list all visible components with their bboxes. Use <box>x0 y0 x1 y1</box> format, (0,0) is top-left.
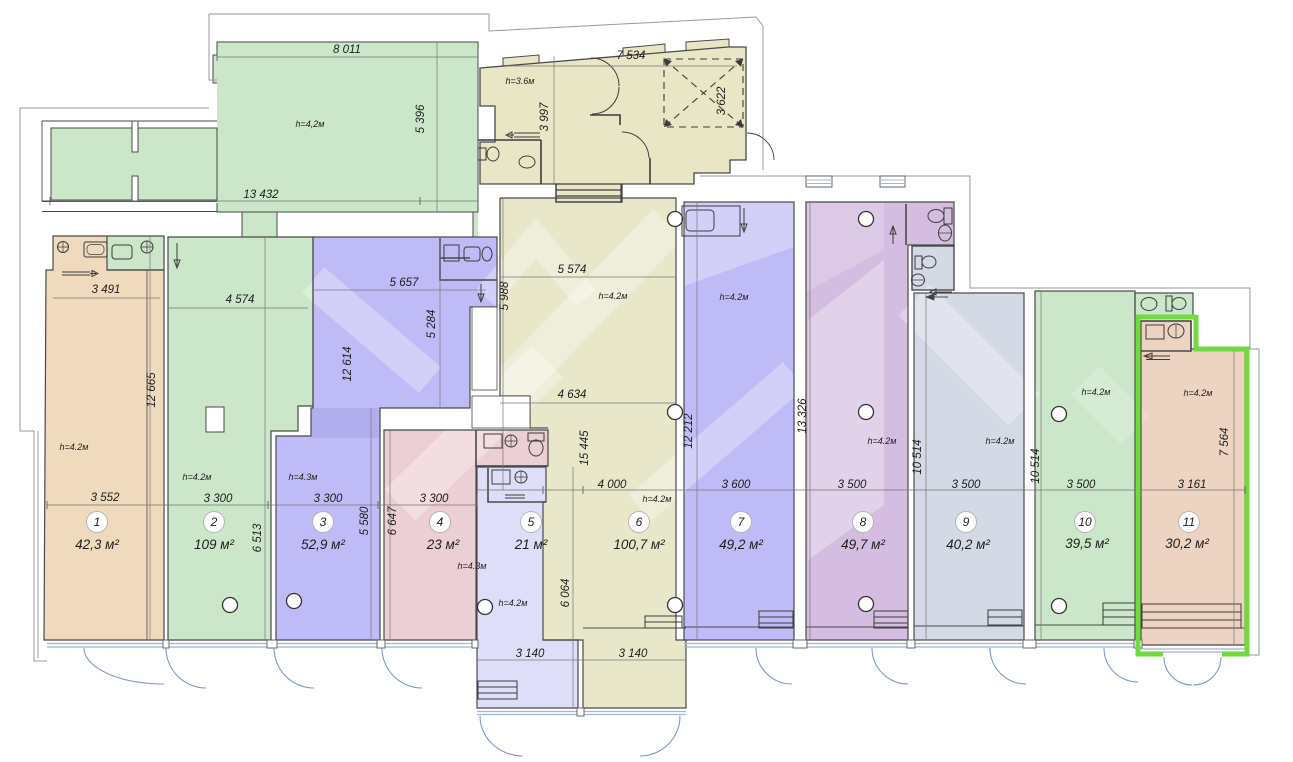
svg-text:13 432: 13 432 <box>243 189 279 201</box>
svg-text:23 м²: 23 м² <box>426 537 460 552</box>
svg-text:52,9 м²: 52,9 м² <box>301 537 345 552</box>
svg-text:3 500: 3 500 <box>838 479 867 491</box>
svg-text:h=4.3м: h=4.3м <box>289 472 318 482</box>
svg-text:3 140: 3 140 <box>619 648 648 660</box>
svg-text:40,2 м²: 40,2 м² <box>946 537 990 552</box>
svg-text:5 396: 5 396 <box>415 104 427 133</box>
svg-text:1: 1 <box>94 515 101 529</box>
svg-text:4 000: 4 000 <box>598 479 627 491</box>
svg-text:100,7 м²: 100,7 м² <box>613 537 665 552</box>
svg-text:h=4.2м: h=4.2м <box>643 494 672 504</box>
svg-text:5 657: 5 657 <box>390 277 419 289</box>
svg-text:5 574: 5 574 <box>558 264 587 276</box>
svg-text:5 988: 5 988 <box>499 281 511 310</box>
svg-text:h=4.2м: h=4.2м <box>720 292 749 302</box>
svg-text:3 491: 3 491 <box>92 284 121 296</box>
svg-text:10 514: 10 514 <box>912 439 924 474</box>
svg-text:15 445: 15 445 <box>579 430 591 466</box>
svg-text:3 300: 3 300 <box>204 493 233 505</box>
svg-text:12 665: 12 665 <box>146 372 158 408</box>
svg-text:109 м²: 109 м² <box>194 537 235 552</box>
svg-text:12 614: 12 614 <box>342 346 354 381</box>
svg-text:49,2 м²: 49,2 м² <box>719 537 763 552</box>
svg-text:3: 3 <box>320 515 327 529</box>
svg-text:5 284: 5 284 <box>426 310 438 339</box>
svg-text:6: 6 <box>636 515 643 529</box>
svg-text:10 514: 10 514 <box>1030 448 1042 483</box>
svg-text:3 500: 3 500 <box>952 479 981 491</box>
svg-text:3 300: 3 300 <box>420 493 449 505</box>
svg-text:11: 11 <box>1183 515 1195 529</box>
svg-text:5 580: 5 580 <box>359 506 371 535</box>
svg-text:6 064: 6 064 <box>560 579 572 608</box>
svg-text:6 513: 6 513 <box>252 523 264 552</box>
svg-text:42,3 м²: 42,3 м² <box>75 537 119 552</box>
svg-text:3 500: 3 500 <box>1067 479 1096 491</box>
svg-text:2: 2 <box>210 515 218 529</box>
svg-text:39,5 м²: 39,5 м² <box>1065 536 1109 551</box>
svg-text:9: 9 <box>963 515 970 529</box>
svg-text:h=4.2м: h=4.2м <box>60 442 89 452</box>
svg-text:h=4,2м: h=4,2м <box>296 119 325 129</box>
svg-text:h=4.2м: h=4.2м <box>183 472 212 482</box>
svg-text:h=4.2м: h=4.2м <box>499 598 528 608</box>
svg-text:3 300: 3 300 <box>314 493 343 505</box>
svg-text:h=4.2м: h=4.2м <box>868 436 897 446</box>
svg-text:5: 5 <box>528 515 535 529</box>
svg-text:3 997: 3 997 <box>539 102 551 131</box>
svg-text:8 011: 8 011 <box>333 44 361 56</box>
svg-text:7 534: 7 534 <box>617 50 646 62</box>
svg-text:30,2 м²: 30,2 м² <box>1165 536 1209 551</box>
svg-text:h=4.3м: h=4.3м <box>458 561 487 571</box>
svg-text:h=4.2м: h=4.2м <box>1184 388 1213 398</box>
svg-text:h=4.2м: h=4.2м <box>1082 387 1111 397</box>
svg-text:3 140: 3 140 <box>516 648 545 660</box>
svg-text:3 552: 3 552 <box>91 492 120 504</box>
svg-text:7 564: 7 564 <box>1219 428 1231 457</box>
svg-text:3 161: 3 161 <box>1178 479 1207 491</box>
svg-text:4: 4 <box>437 515 444 529</box>
svg-text:10: 10 <box>1078 515 1092 529</box>
svg-text:h=4.2м: h=4.2м <box>986 436 1015 446</box>
svg-text:h=3.6м: h=3.6м <box>506 76 535 86</box>
svg-text:4 634: 4 634 <box>558 389 587 401</box>
svg-text:49,7 м²: 49,7 м² <box>841 537 885 552</box>
svg-text:4 574: 4 574 <box>226 294 255 306</box>
svg-text:13 326: 13 326 <box>797 398 809 434</box>
svg-text:21 м²: 21 м² <box>514 537 548 552</box>
svg-text:3 600: 3 600 <box>722 479 751 491</box>
svg-text:3 622: 3 622 <box>716 86 728 115</box>
svg-text:12 212: 12 212 <box>683 413 695 449</box>
svg-text:h=4.2м: h=4.2м <box>599 291 628 301</box>
svg-text:8: 8 <box>860 515 867 529</box>
svg-text:6 647: 6 647 <box>387 506 399 535</box>
